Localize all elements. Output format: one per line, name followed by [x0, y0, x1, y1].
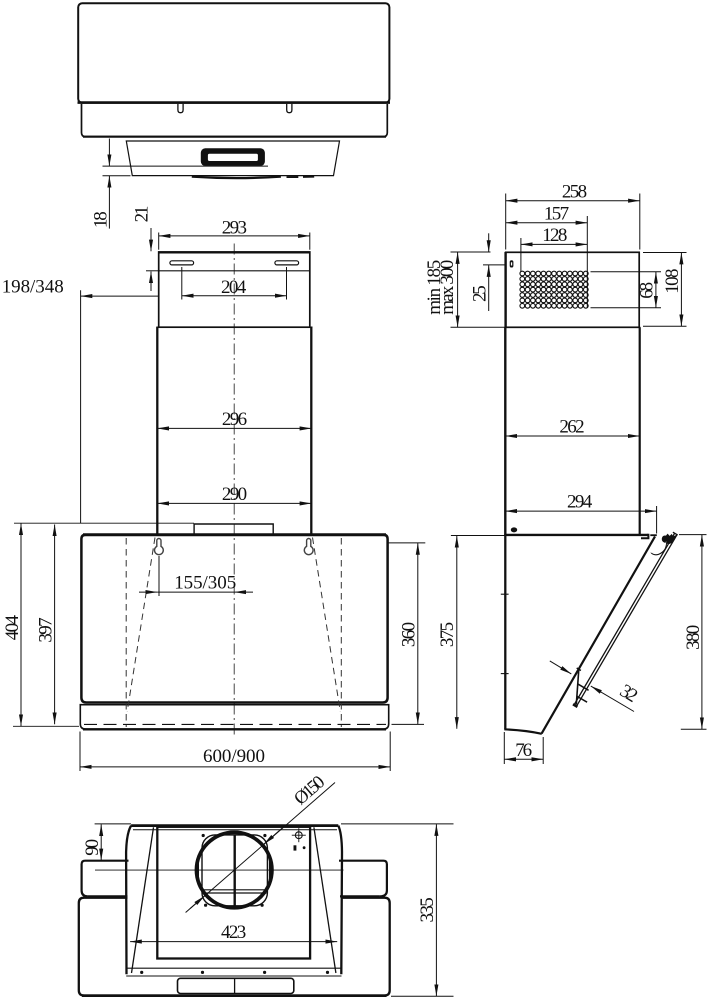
svg-text:294: 294	[567, 492, 593, 513]
svg-text:21: 21	[132, 206, 153, 223]
svg-text:423: 423	[221, 922, 246, 943]
svg-text:204: 204	[221, 277, 247, 298]
svg-text:25: 25	[469, 285, 490, 302]
svg-text:128: 128	[542, 225, 567, 246]
svg-text:76: 76	[515, 740, 532, 761]
svg-text:Ø150: Ø150	[291, 772, 329, 809]
svg-text:258: 258	[562, 181, 587, 202]
svg-text:155/305: 155/305	[174, 573, 236, 594]
svg-text:290: 290	[222, 484, 247, 505]
svg-text:404: 404	[2, 615, 23, 641]
svg-text:296: 296	[222, 409, 247, 430]
svg-text:262: 262	[559, 417, 584, 438]
svg-text:max 300: max 300	[437, 260, 458, 315]
svg-text:335: 335	[417, 897, 438, 922]
svg-text:600/900: 600/900	[203, 746, 265, 767]
svg-text:90: 90	[82, 839, 103, 856]
svg-text:157: 157	[544, 203, 569, 224]
svg-text:293: 293	[222, 218, 247, 239]
svg-text:397: 397	[35, 617, 56, 642]
svg-text:360: 360	[399, 622, 420, 647]
svg-text:380: 380	[683, 625, 704, 650]
svg-text:18: 18	[91, 211, 112, 228]
svg-text:108: 108	[662, 269, 683, 294]
svg-text:375: 375	[437, 622, 458, 647]
svg-text:198/348: 198/348	[2, 276, 64, 297]
svg-text:68: 68	[637, 282, 658, 299]
